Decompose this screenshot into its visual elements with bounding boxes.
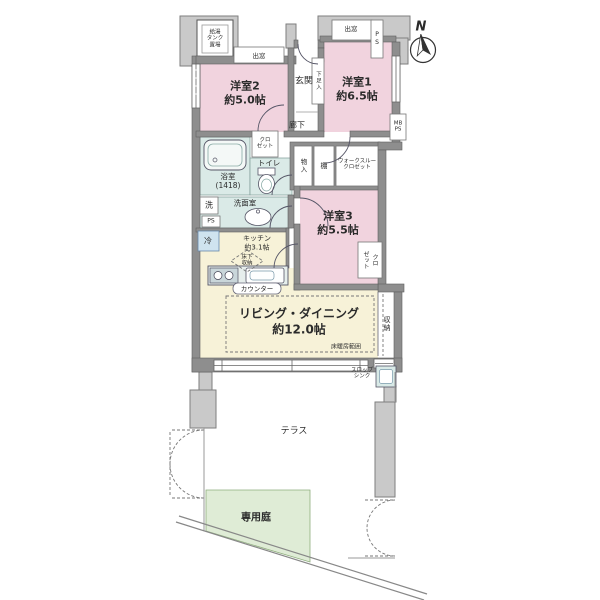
toilet-tank	[258, 168, 275, 175]
water-tank-box	[197, 20, 233, 58]
kitchen-sink	[246, 268, 284, 283]
private-garden-area	[206, 490, 310, 562]
bay-window-left-box	[234, 47, 284, 63]
shelf-box	[314, 146, 334, 186]
compass-icon	[411, 33, 436, 62]
shoe-box	[312, 58, 324, 104]
floorplan: 給湯 タンク 置場 出窓 出窓 PS N 洋室2 約5.0帖 洋室1 約6.5帖…	[0, 0, 600, 600]
washer-box	[200, 197, 218, 214]
ps-shaft-box	[371, 20, 383, 58]
ps-small-box	[202, 216, 220, 227]
counter-tag	[233, 283, 281, 294]
fridge-box	[198, 231, 219, 251]
bedroom3-closet-box	[358, 242, 382, 278]
walk-through-closet-box	[336, 146, 378, 186]
room-fills	[200, 42, 394, 562]
washbasin	[245, 209, 271, 226]
floorplan-geometry	[0, 0, 600, 600]
hall-closet-box	[252, 131, 278, 157]
storage-inner-box	[294, 146, 312, 186]
bay-window-right-box	[332, 20, 372, 40]
meter-box	[390, 114, 406, 140]
